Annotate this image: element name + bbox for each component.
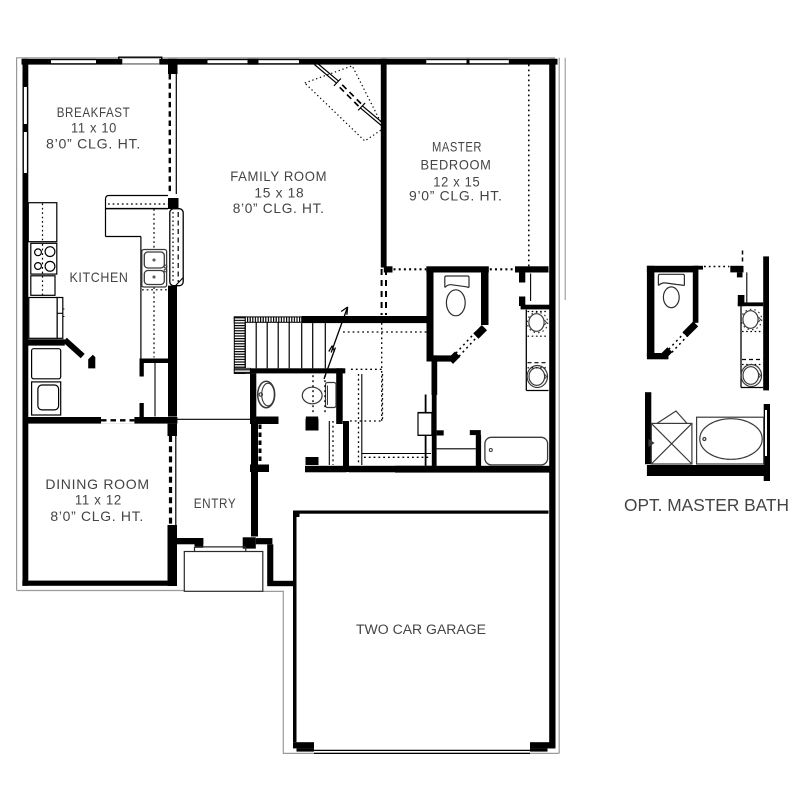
svg-text:TWO CAR GARAGE: TWO CAR GARAGE [356, 622, 486, 638]
svg-text:11 x 10: 11 x 10 [71, 121, 117, 136]
svg-text:ENTRY: ENTRY [194, 496, 237, 511]
svg-text:OPT. MASTER BATH: OPT. MASTER BATH [624, 495, 789, 515]
svg-text:9’0” CLG. HT.: 9’0” CLG. HT. [409, 189, 503, 204]
svg-text:8’0” CLG. HT.: 8’0” CLG. HT. [50, 509, 144, 524]
svg-text:KITCHEN: KITCHEN [70, 270, 129, 285]
svg-text:BEDROOM: BEDROOM [421, 158, 492, 173]
svg-text:BREAKFAST: BREAKFAST [57, 105, 131, 120]
svg-text:15 x 18: 15 x 18 [254, 185, 304, 200]
svg-text:8’0” CLG. HT.: 8’0” CLG. HT. [233, 201, 325, 216]
svg-text:11 x 12: 11 x 12 [75, 493, 122, 508]
svg-text:12 x 15: 12 x 15 [433, 175, 480, 190]
svg-text:FAMILY ROOM: FAMILY ROOM [230, 169, 327, 184]
svg-text:8’0” CLG. HT.: 8’0” CLG. HT. [46, 137, 141, 152]
svg-text:MASTER: MASTER [432, 140, 482, 155]
svg-text:DINING ROOM: DINING ROOM [45, 477, 150, 492]
